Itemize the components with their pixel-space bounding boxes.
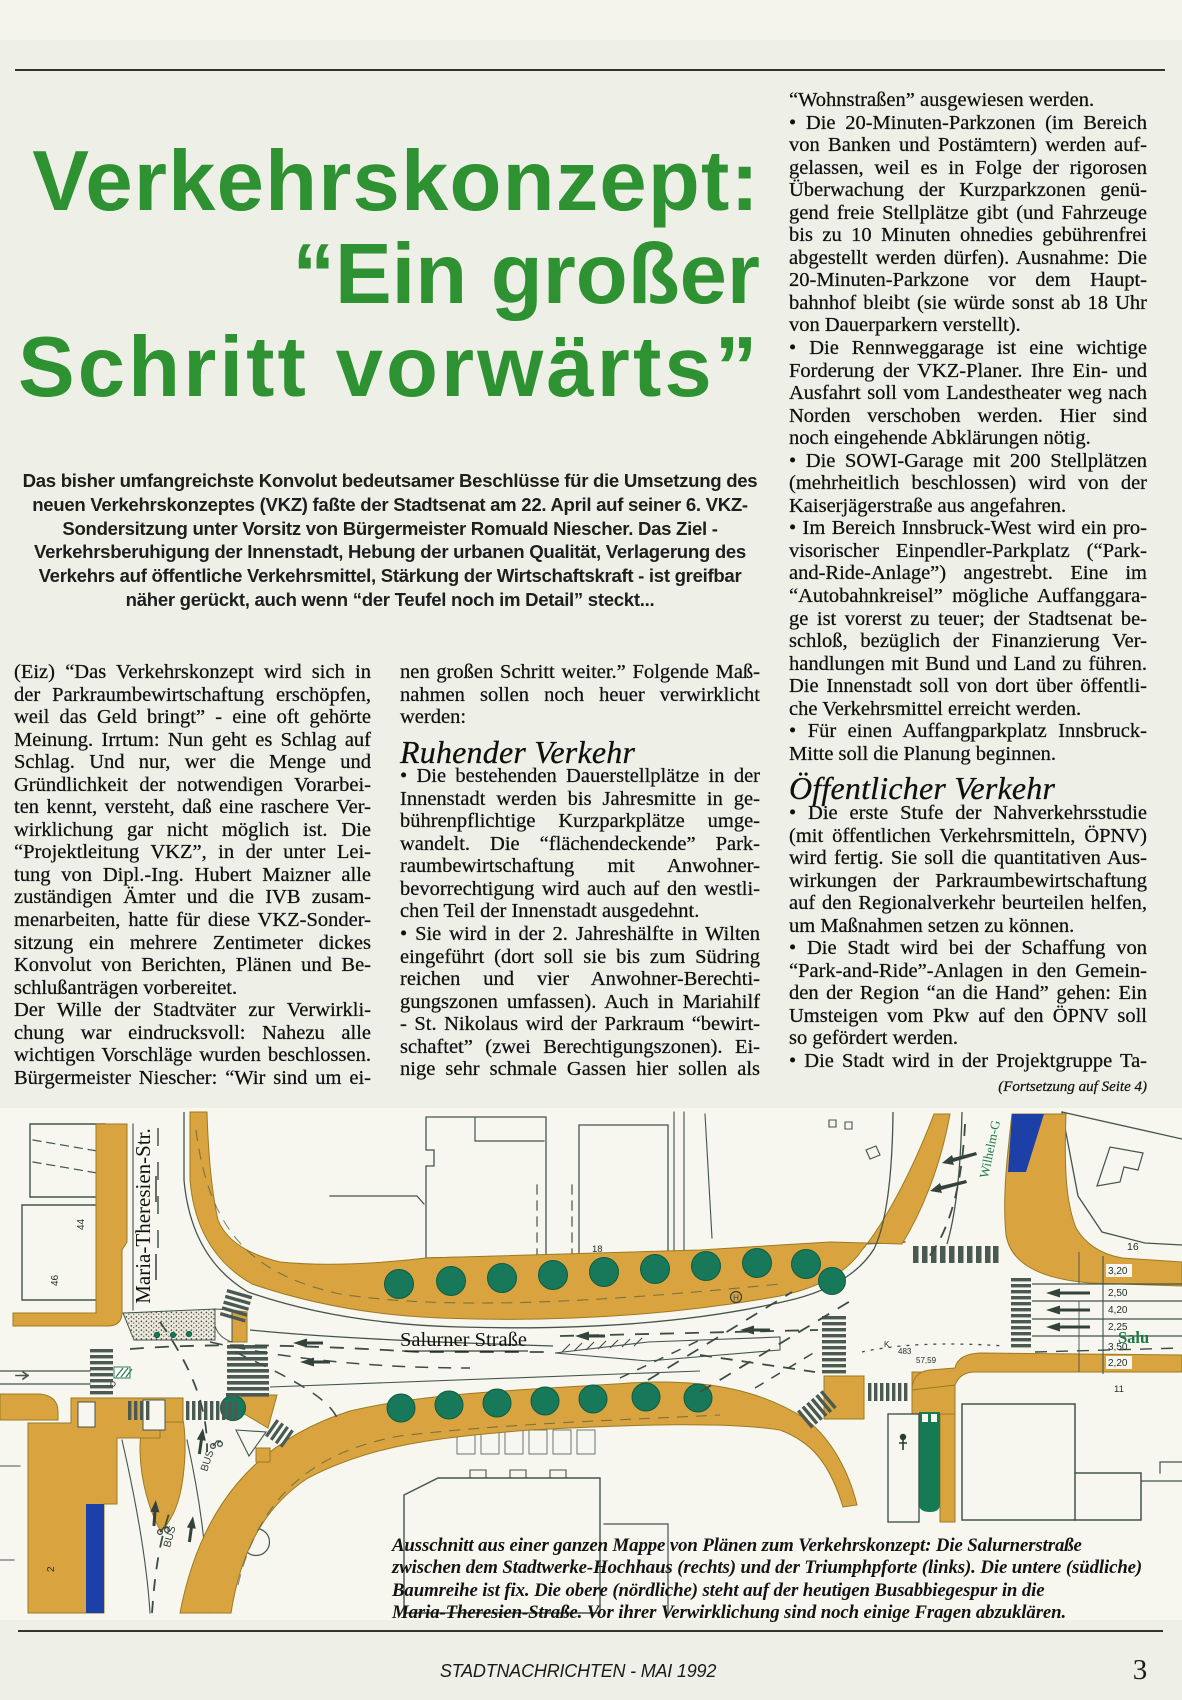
svg-text:16: 16 <box>1127 1241 1139 1253</box>
svg-text:2: 2 <box>46 1566 57 1572</box>
svg-text:Maria-Theresien-Str.: Maria-Theresien-Str. <box>131 1128 155 1304</box>
svg-text:11: 11 <box>1114 1384 1124 1395</box>
svg-text:Salu: Salu <box>1118 1328 1149 1347</box>
svg-text:46: 46 <box>50 1274 61 1286</box>
svg-text:57,59: 57,59 <box>916 1356 937 1365</box>
svg-text:4,20: 4,20 <box>1108 1305 1128 1316</box>
svg-text:2,20: 2,20 <box>1108 1358 1128 1369</box>
svg-text:483: 483 <box>898 1347 912 1356</box>
svg-text:H: H <box>733 1294 739 1303</box>
svg-text:3,20: 3,20 <box>1108 1266 1128 1277</box>
svg-text:2,50: 2,50 <box>1108 1288 1128 1299</box>
svg-text:44: 44 <box>76 1218 87 1230</box>
svg-text:K: K <box>884 1340 890 1349</box>
svg-text:18: 18 <box>592 1244 603 1255</box>
svg-text:Salurner Straße: Salurner Straße <box>400 1329 527 1351</box>
